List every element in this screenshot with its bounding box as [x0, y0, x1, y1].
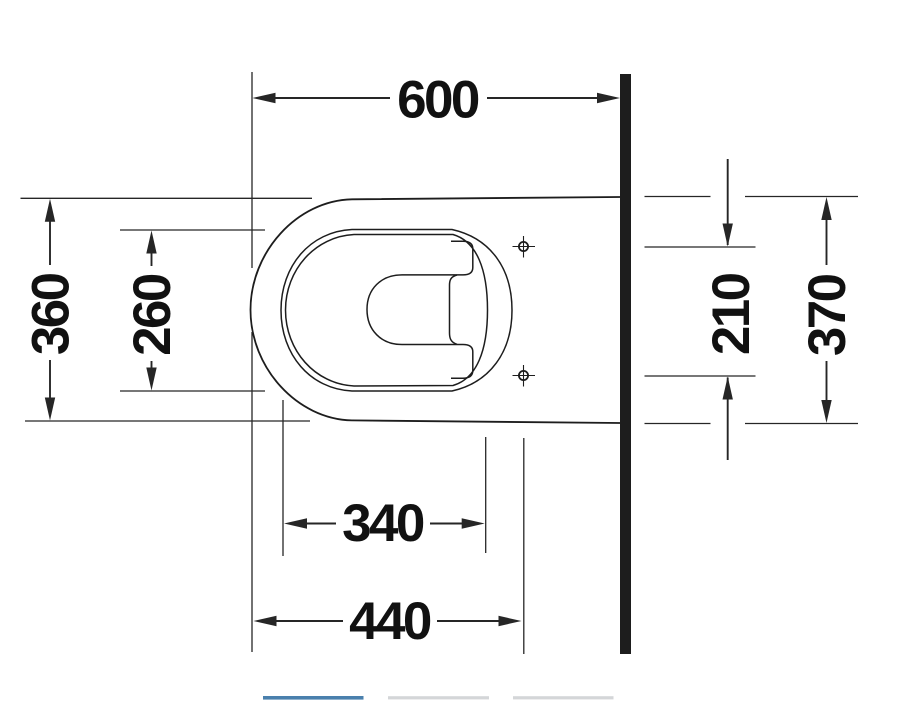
svg-text:210: 210 [702, 273, 761, 355]
svg-text:370: 370 [798, 274, 857, 356]
svg-text:440: 440 [349, 592, 431, 651]
svg-text:600: 600 [397, 70, 479, 129]
svg-text:260: 260 [123, 274, 182, 356]
svg-text:360: 360 [21, 273, 80, 355]
svg-text:340: 340 [342, 494, 424, 553]
